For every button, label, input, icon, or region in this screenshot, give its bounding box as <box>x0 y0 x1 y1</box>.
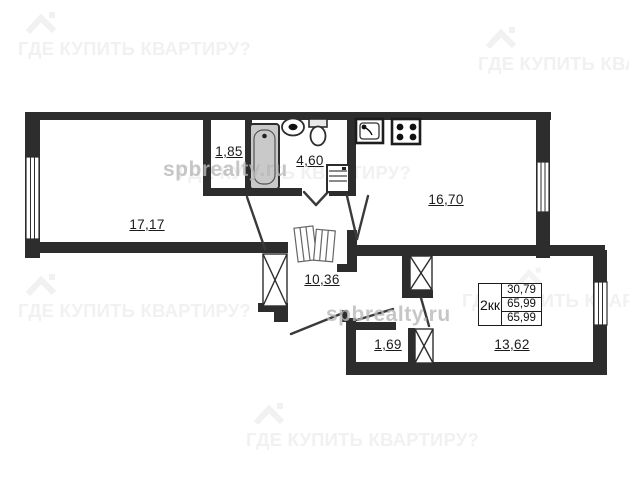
wall-entry-stub <box>274 310 288 322</box>
door-leaf-bathroom-a <box>304 192 316 205</box>
floorplan-page: ГДЕ КУПИТЬ КВАРТИРУ? ГДЕ КУПИТЬ КВАРТИРУ… <box>0 0 629 480</box>
floor-plan-svg <box>0 0 629 480</box>
site-watermark-lower: spbrealty.ru <box>326 303 451 327</box>
wall-living-bottom <box>25 242 288 253</box>
room-label-hall: 1,85 <box>215 144 242 159</box>
vent-shaft-corridor <box>263 254 287 306</box>
door-leaf-kitchen-b <box>357 196 368 239</box>
toilet-icon <box>309 119 327 146</box>
wall-kitchen-left-cap <box>337 264 348 272</box>
apartment-info-table: 2кк 30,79 65,99 65,99 <box>478 283 542 326</box>
total-area-value-2: 65,99 <box>502 312 541 325</box>
living-area-value: 30,79 <box>502 284 541 298</box>
wall-kitchen-bottom <box>347 245 605 256</box>
room-label-bedroom: 13,62 <box>494 337 529 352</box>
wardrobe-icon <box>294 226 335 262</box>
kitchen-sink-icon <box>356 119 383 143</box>
window-right-upper <box>537 162 549 212</box>
room-label-storage: 1,69 <box>374 337 401 352</box>
window-right-lower <box>594 282 607 325</box>
vent-shaft-upper <box>410 256 432 290</box>
kitchen-fixtures <box>356 119 420 144</box>
apartment-type: 2кк <box>479 284 502 325</box>
total-area-value: 65,99 <box>502 298 541 312</box>
wall-shaft-upper-cap <box>402 290 433 298</box>
sink-icon <box>282 119 304 136</box>
wall-bottom <box>346 362 607 375</box>
room-label-kitchen: 16,70 <box>428 192 463 207</box>
room-label-living: 17,17 <box>129 217 164 232</box>
door-leaf-living <box>247 197 265 249</box>
room-label-corridor: 10,36 <box>304 272 339 287</box>
wall-shaft-lower-stub <box>408 328 415 363</box>
window-left <box>26 157 39 239</box>
wall-shaft-upper-stub <box>402 254 410 291</box>
site-watermark-upper: spbrealty.ru <box>163 158 288 182</box>
vent-shaft-lower <box>415 329 433 363</box>
room-label-bathroom: 4,60 <box>296 153 323 168</box>
door-leaf-bathroom-b <box>316 192 328 205</box>
washing-machine-icon <box>327 165 349 192</box>
stove-icon <box>392 119 420 144</box>
